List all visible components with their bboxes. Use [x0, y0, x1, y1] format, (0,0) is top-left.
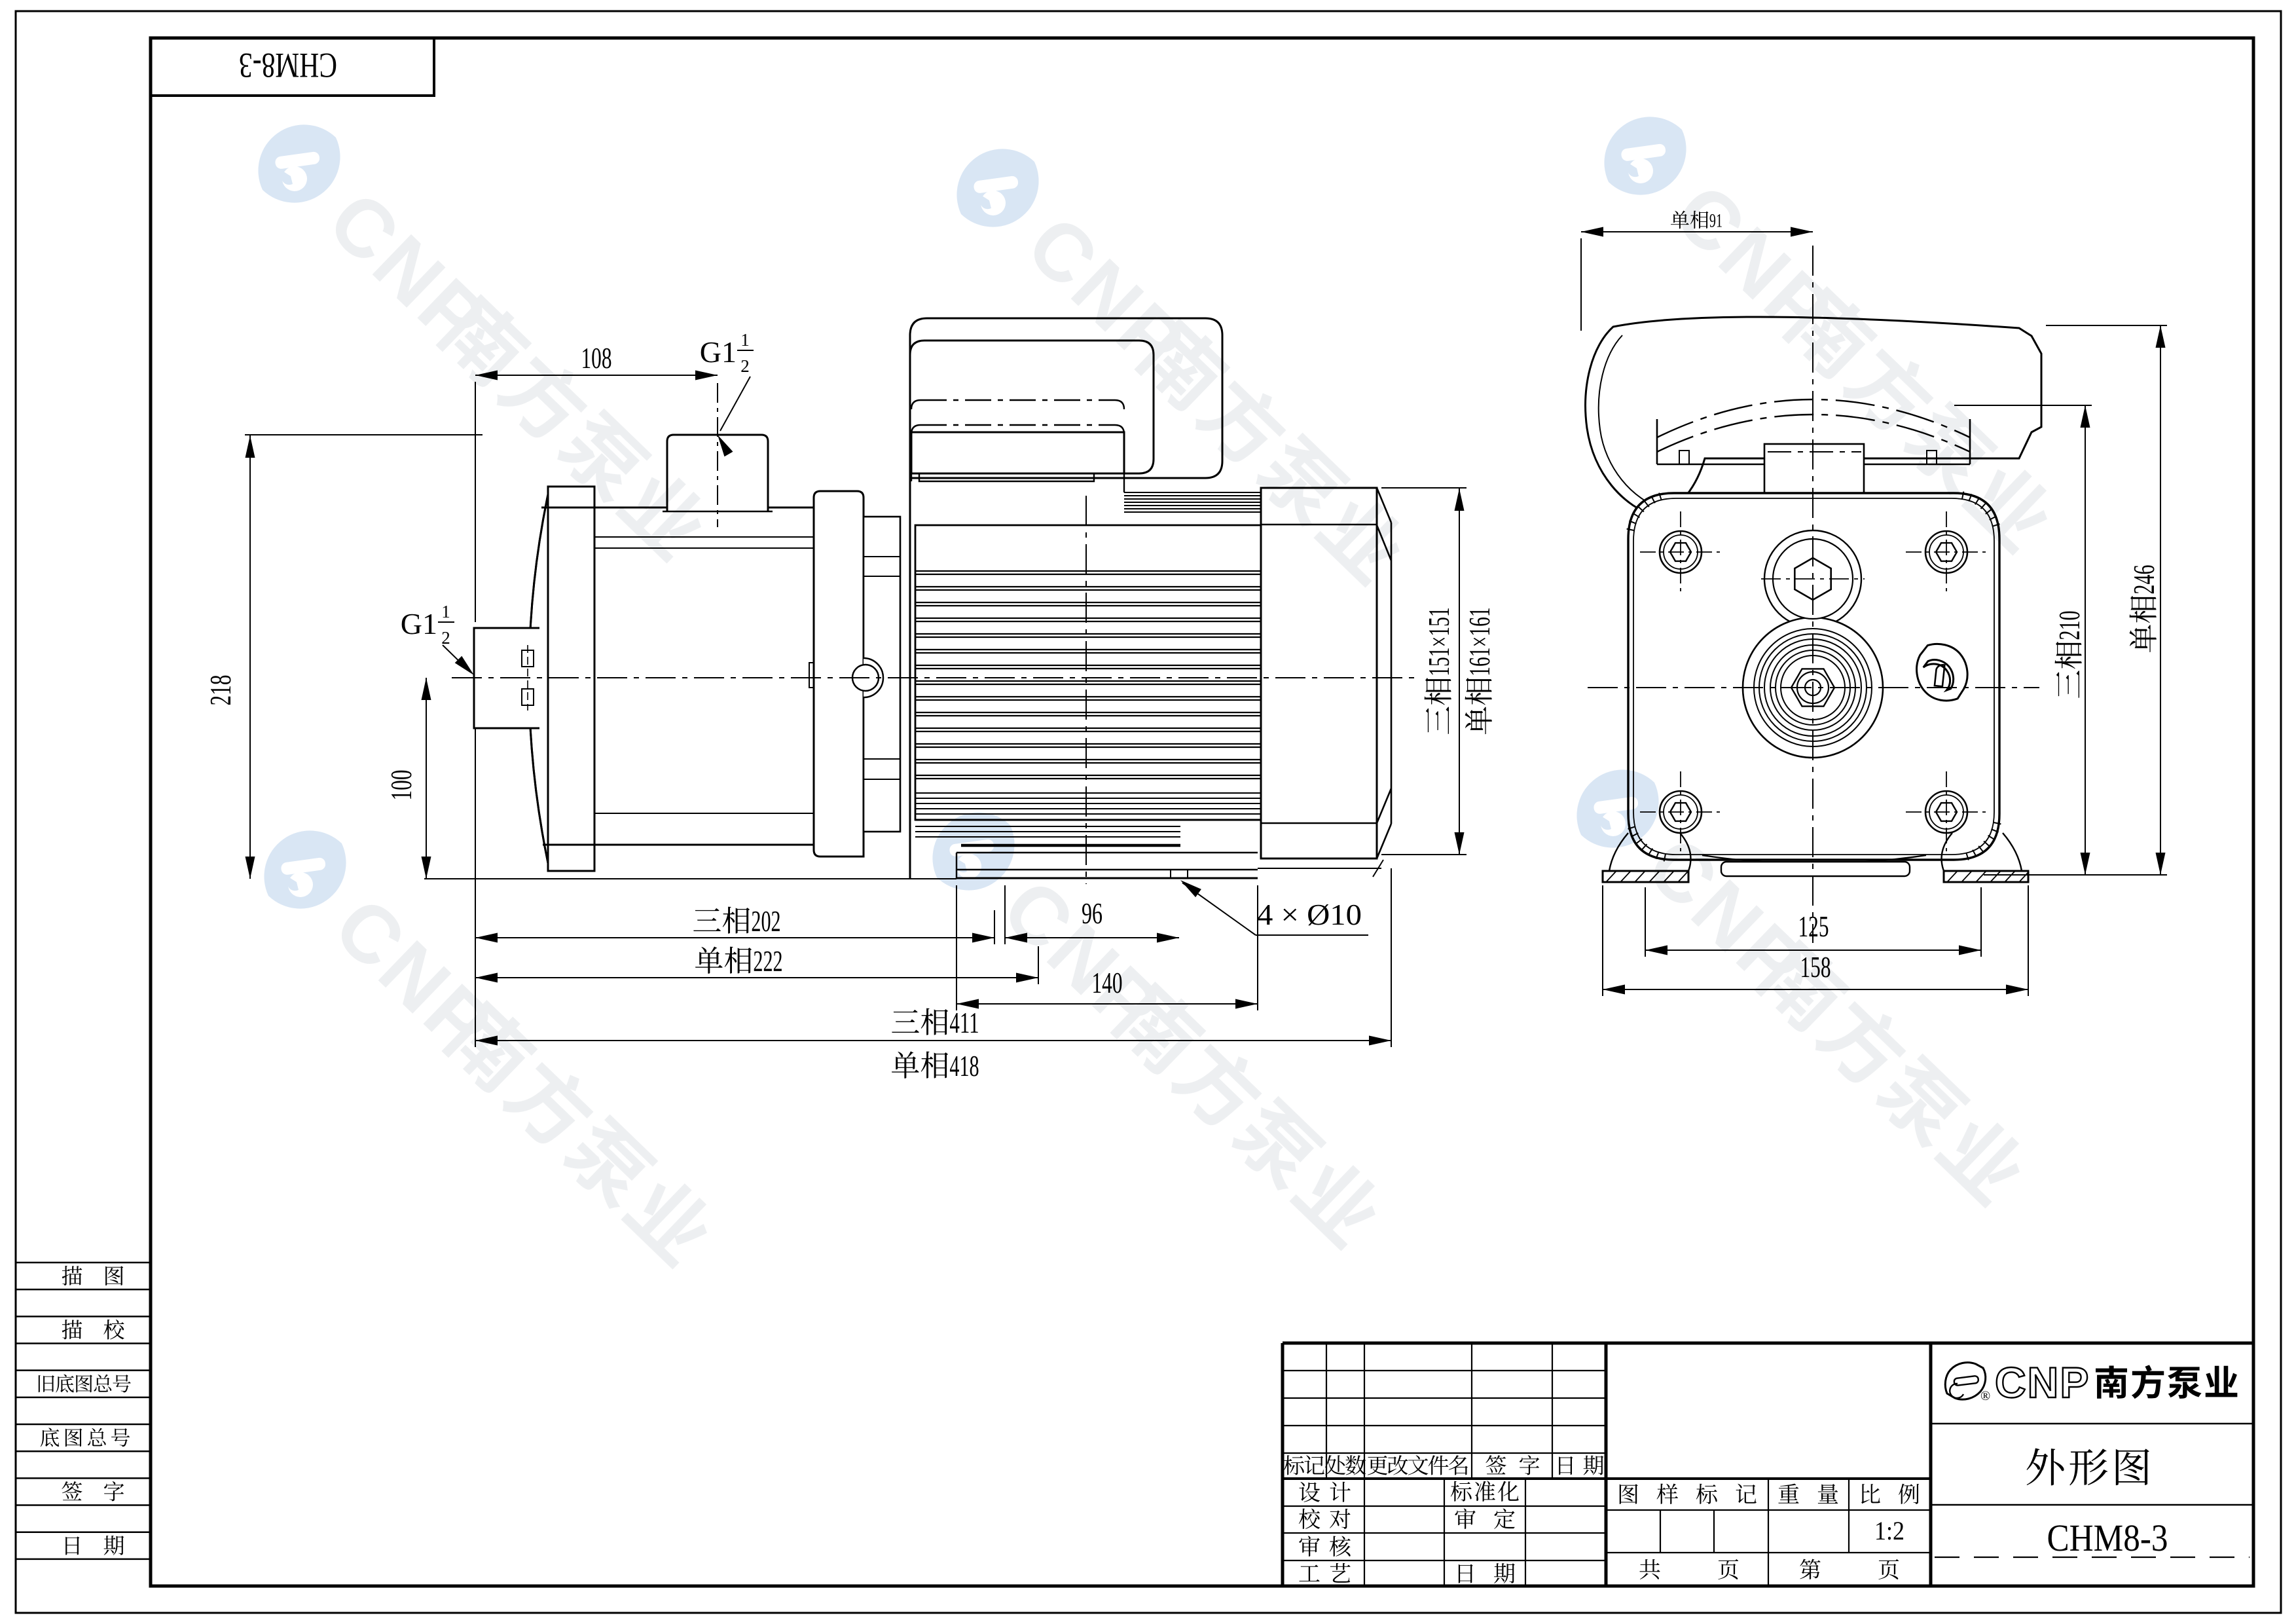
- svg-text:1: 1: [441, 602, 450, 621]
- svg-text:4 × Ø10: 4 × Ø10: [1257, 898, 1362, 931]
- svg-text:202: 202: [751, 905, 780, 938]
- svg-text:G1: G1: [700, 335, 737, 369]
- svg-text:CHM8-3: CHM8-3: [2047, 1517, 2168, 1559]
- svg-text:CHM8-3: CHM8-3: [239, 46, 337, 85]
- svg-text:210: 210: [2053, 610, 2086, 640]
- svg-text:151×151: 151×151: [1423, 607, 1455, 676]
- svg-text:246: 246: [2128, 564, 2160, 594]
- svg-text:2: 2: [441, 628, 450, 648]
- svg-text:161×161: 161×161: [1463, 607, 1496, 676]
- svg-text:®: ®: [1980, 1389, 1990, 1403]
- svg-text:411: 411: [949, 1006, 979, 1039]
- svg-text:418: 418: [949, 1050, 979, 1082]
- svg-text:2: 2: [740, 356, 750, 376]
- svg-text:1: 1: [740, 330, 750, 350]
- svg-text:1:2: 1:2: [1874, 1516, 1904, 1545]
- svg-text:108: 108: [581, 341, 612, 375]
- svg-text:218: 218: [204, 675, 237, 706]
- svg-text:G1: G1: [401, 607, 437, 640]
- svg-text:222: 222: [753, 945, 782, 978]
- svg-text:100: 100: [384, 770, 418, 801]
- svg-text:CNP: CNP: [1995, 1358, 2090, 1407]
